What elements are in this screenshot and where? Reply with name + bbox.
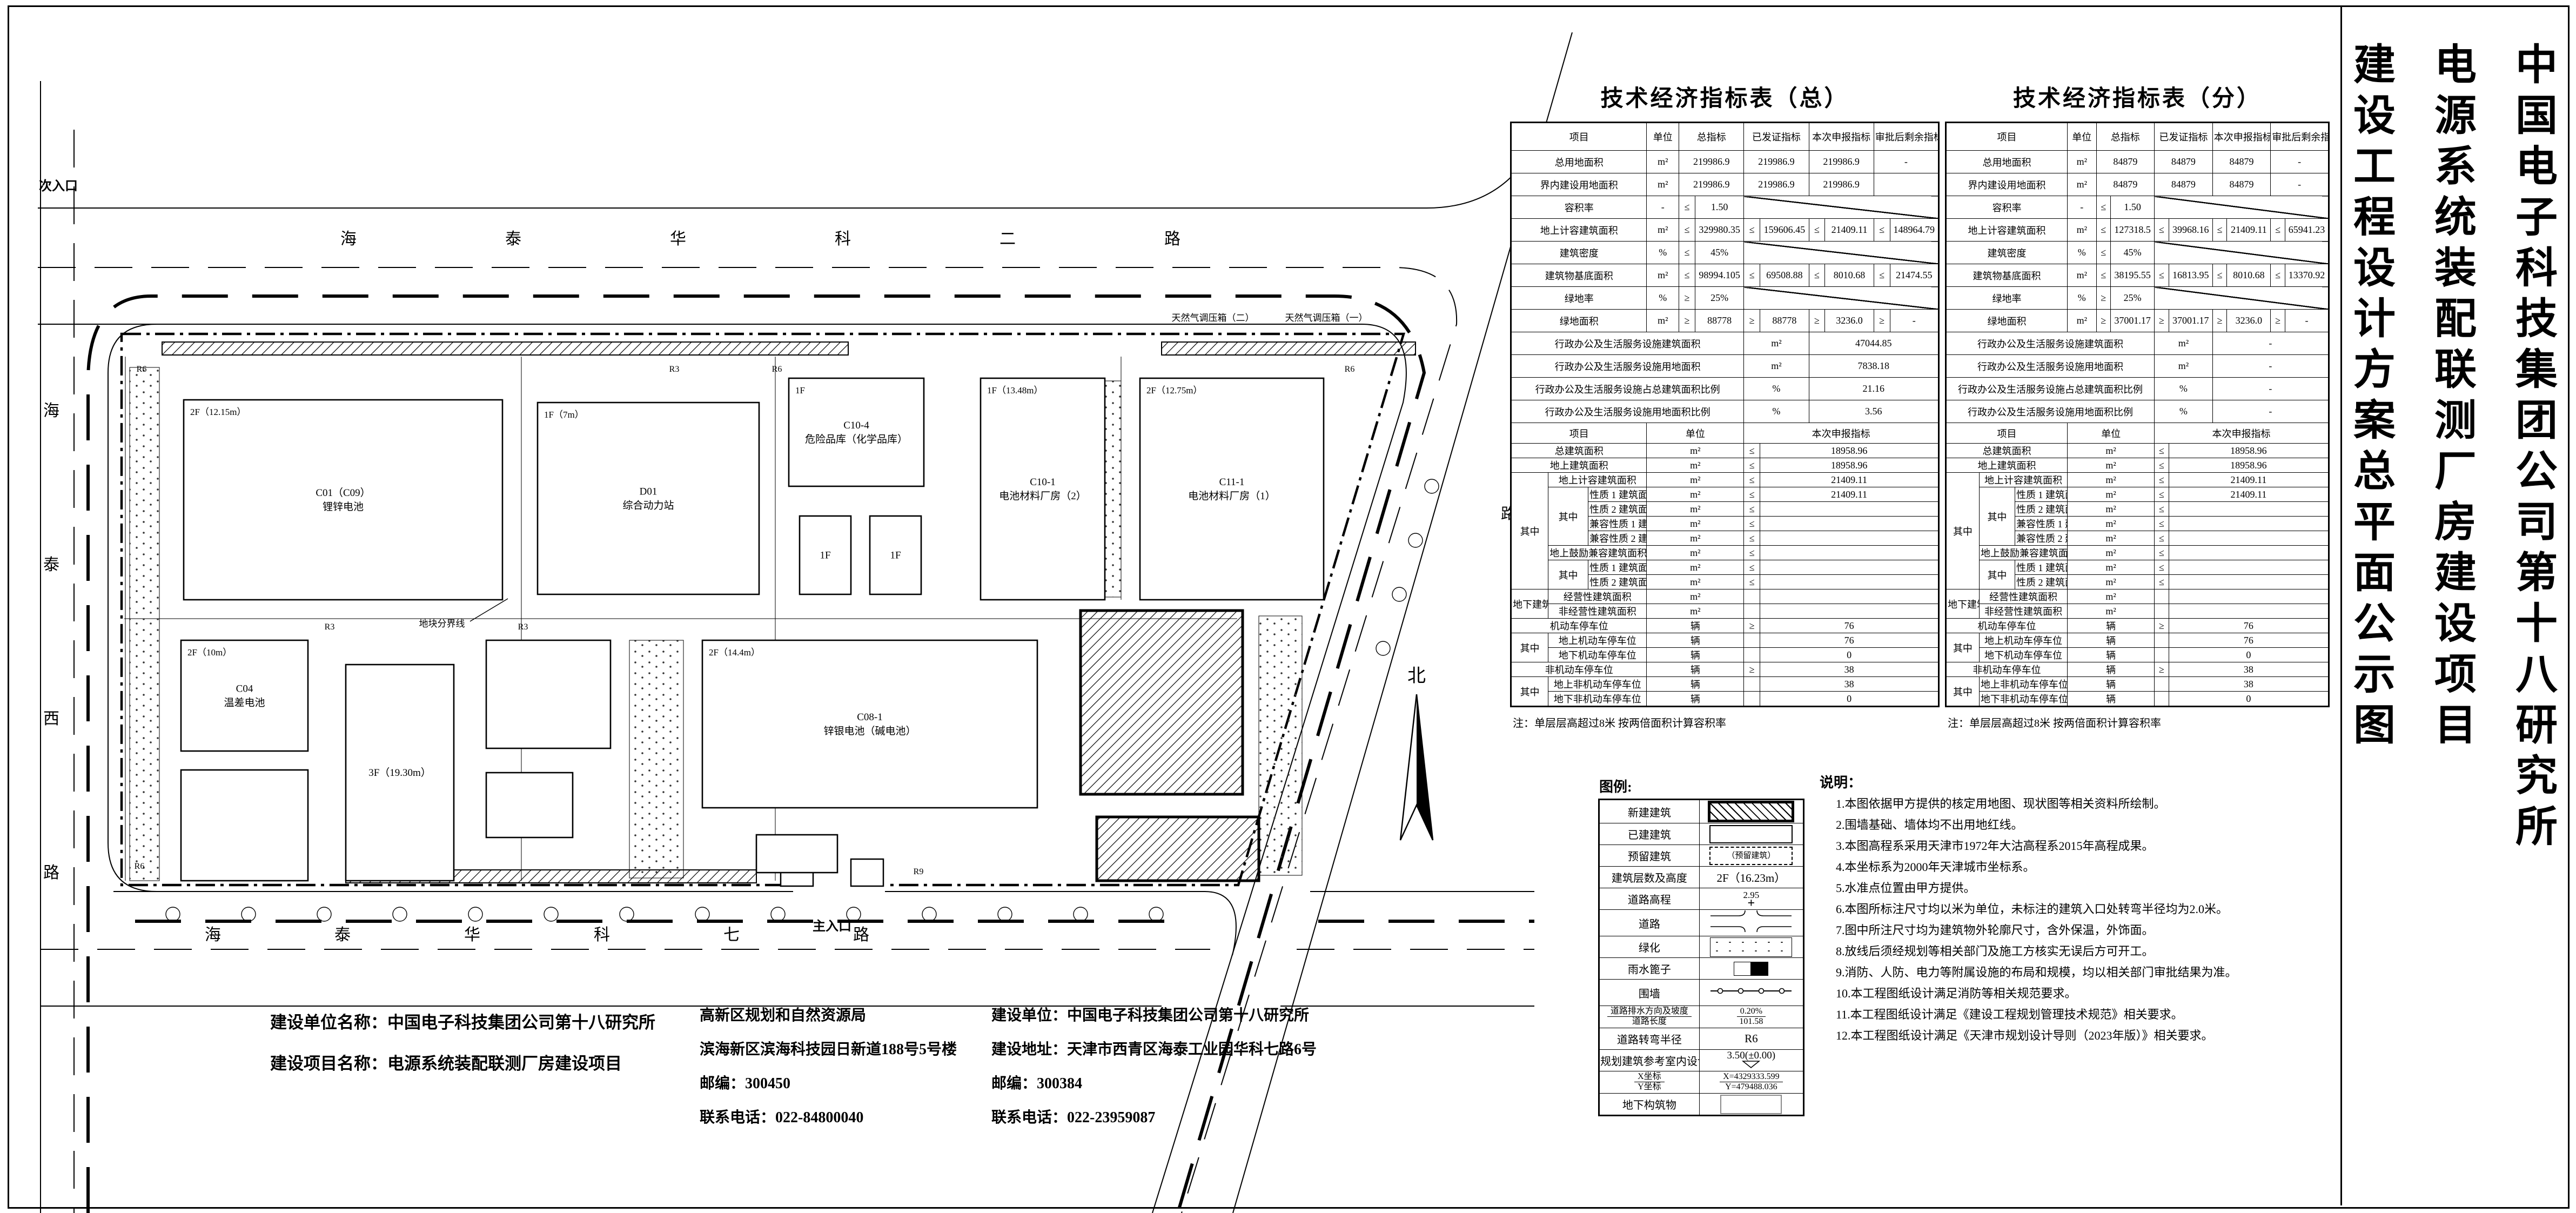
row-label: 地上计容建筑面积	[1979, 473, 2067, 487]
unit-cell: m²	[2068, 444, 2155, 458]
unit-cell: 辆	[2068, 619, 2155, 633]
table-row: 行政办公及生活服务设施占总建筑面积比例%21.16	[1511, 378, 1939, 400]
road-name-top: 海	[340, 230, 357, 248]
reserved-building-swatch: （预留建筑）	[1709, 847, 1793, 865]
table-row: 容积率-≤1.50	[1511, 196, 1939, 219]
unit-cell: 辆	[2068, 692, 2155, 707]
notes-list: 1.本图依据甲方提供的核定用地图、现状图等相关资料所绘制。2.围墙基础、墙体均不…	[1836, 793, 2237, 1046]
row-label: 总建筑面积	[1946, 444, 2068, 458]
sign-cell: ≤	[2155, 473, 2169, 487]
note-item: 4.本坐标系为2000年天津城市坐标系。	[1836, 856, 2237, 877]
sign-cell: ≤	[2155, 487, 2169, 502]
contact-line: 建设地址：天津市西青区海泰工业园华科七路6号	[991, 1033, 1317, 1067]
tree-icon	[242, 907, 256, 921]
table-row: 地上建筑面积m²≤18958.96	[1511, 458, 1939, 473]
unit-cell: m²	[2068, 173, 2096, 196]
table-row: 机动车停车位辆≥76	[1511, 619, 1939, 633]
legend-symbol-frac: 0.20%101.58	[1699, 1006, 1803, 1028]
value-cell	[2169, 531, 2329, 546]
value-cell: 76	[2169, 619, 2329, 633]
legend-row: X坐标Y坐标X=4329333.599Y=479488.036	[1599, 1071, 1804, 1094]
table-row: 机动车停车位辆≥76	[1946, 619, 2329, 633]
row-label: 建筑物基底面积	[1511, 264, 1647, 287]
sign-cell: ≤	[2155, 575, 2169, 589]
group-cell: 其中	[1946, 677, 1980, 707]
value-cell: 25%	[1695, 287, 1743, 310]
road-name-top: 泰	[505, 230, 521, 248]
row-label: 性质 1 建筑面积	[2015, 487, 2068, 502]
sign-cell: ≤	[2155, 458, 2169, 473]
legend: 新建建筑已建建筑预留建筑（预留建筑）建筑层数及高度2F（16.23m）道路高程2…	[1598, 799, 1804, 1116]
table-row: 非经营性建筑面积m²	[1946, 604, 2329, 619]
row-label: 建筑密度	[1946, 242, 2068, 264]
plan-building	[756, 835, 837, 873]
value-cell: 21409.11	[1760, 487, 1939, 502]
table-row: 行政办公及生活服务设施用地面积比例%3.56	[1511, 400, 1939, 423]
building-label: 锌银电池（碱电池）	[823, 725, 916, 737]
legend-symbol-fence	[1699, 980, 1803, 1006]
value-cell: -	[2212, 378, 2329, 400]
value-cell: 1.50	[2111, 196, 2155, 219]
table-total-title: 技术经济指标表（总）	[1510, 80, 1940, 113]
row-label: 性质 1 建筑面积	[1588, 487, 1646, 502]
table-row: 建筑物基底面积m²≤38195.55≤16813.95≤8010.68≤1337…	[1946, 264, 2329, 287]
table-row: 地下机动车停车位辆0	[1511, 648, 1939, 662]
legend-name: 建筑层数及高度	[1599, 867, 1700, 888]
contact-line: 建设单位：中国电子科技集团公司第十八研究所	[991, 998, 1317, 1033]
table-row: 行政办公及生活服务设施用地面积m²-	[1946, 355, 2329, 378]
plan-building	[486, 640, 611, 748]
row-label: 容积率	[1946, 196, 2068, 219]
sign-cell: ≤	[1744, 546, 1760, 560]
value-cell: 0	[2169, 648, 2329, 662]
note-item: 7.图中所注尺寸均为建筑物外轮廓尺寸，含外保温，外饰面。	[1836, 920, 2237, 941]
row-label: 地下非机动车停车位	[1548, 692, 1647, 707]
tree-icon	[771, 907, 785, 921]
group-cell: 其中	[1511, 677, 1548, 707]
building-label: 危险品库（化学品库）	[805, 433, 908, 445]
legend-name: 道路	[1599, 910, 1700, 936]
tree-icon	[544, 907, 558, 921]
sign-cell: ≤	[1744, 219, 1760, 242]
plan-building	[789, 378, 924, 486]
row-label: 性质 2 建筑面积	[1588, 575, 1646, 589]
plan-annotation: 天然气调压箱（二）	[1172, 313, 1255, 323]
sign-cell	[1744, 692, 1760, 707]
unit-cell: -	[1647, 196, 1679, 219]
row-label: 经营性建筑面积	[1548, 589, 1647, 604]
contact-line: 联系电话：022-23959087	[991, 1101, 1317, 1135]
road-edge	[38, 124, 1544, 208]
diagonal-cell	[1744, 196, 1939, 219]
table-row: 其中性质 1 建筑面积m²≤21409.11	[1946, 487, 2329, 502]
value-cell: 18958.96	[1760, 458, 1939, 473]
value-cell	[1760, 531, 1939, 546]
value-cell	[1760, 560, 1939, 575]
tree-icon	[317, 907, 331, 921]
unit-cell: m²	[1647, 604, 1744, 619]
table-row: 非经营性建筑面积m²	[1511, 604, 1939, 619]
group-cell: 其中	[1946, 473, 1980, 589]
row-label: 地上鼓励兼容建筑面积	[1979, 546, 2067, 560]
table-row: 其中性质 1 建筑面积m²≤	[1511, 560, 1939, 575]
unit-cell: 辆	[2068, 677, 2155, 692]
row-label: 兼容性质 2 建筑面积	[2015, 531, 2068, 546]
value-cell: 84879	[2212, 151, 2271, 173]
sign-cell: ≥	[1744, 310, 1760, 332]
plan-building	[181, 770, 308, 881]
diagonal-cell	[1744, 242, 1939, 264]
value-cell: 3.56	[1809, 400, 1938, 423]
table-detail: 项目单位总指标已发证指标本次申报指标审批后剩余指标总用地面积m²84879848…	[1945, 122, 2330, 707]
group-cell: 其中	[1548, 487, 1588, 546]
value-cell: 21.16	[1809, 378, 1938, 400]
table-row: 绿地率%≥25%	[1946, 287, 2329, 310]
unit-cell: %	[1744, 378, 1809, 400]
table-row: 绿地率%≥25%	[1511, 287, 1939, 310]
sign-cell: ≤	[2096, 196, 2111, 219]
legend-row: 绿化	[1599, 936, 1804, 958]
unit-cell: 辆	[1647, 633, 1744, 648]
row-label: 地上非机动车停车位	[1979, 677, 2067, 692]
note-item: 12.本工程图纸设计满足《天津市规划设计导则（2023年版）》相关要求。	[1836, 1025, 2237, 1046]
sign-cell: ≥	[1744, 662, 1760, 677]
legend-row: 预留建筑（预留建筑）	[1599, 845, 1804, 867]
legend-symbol-new	[1699, 800, 1803, 823]
value-cell: 219986.9	[1744, 173, 1809, 196]
column-header: 总指标	[2096, 123, 2155, 151]
value-cell: 76	[1760, 619, 1939, 633]
value-cell	[2169, 589, 2329, 604]
tree-icon	[1408, 533, 1423, 547]
value-cell: -	[2271, 151, 2329, 173]
sign-cell: ≤	[1874, 264, 1890, 287]
value-cell: 8010.68	[1825, 264, 1874, 287]
sign-cell: ≤	[2155, 546, 2169, 560]
road-name-top: 二	[999, 230, 1016, 248]
table-row: 其中地上非机动车停车位辆38	[1946, 677, 2329, 692]
table-row: 绿地面积m²≥88778≥88778≥3236.0≥-	[1511, 310, 1939, 332]
sign-cell: ≤	[1874, 219, 1890, 242]
tree-icon	[1392, 587, 1406, 601]
table-row: 地下建筑面积经营性建筑面积m²	[1946, 589, 2329, 604]
row-label: 性质 2 建筑面积	[2015, 575, 2068, 589]
north-arrow	[1400, 694, 1433, 840]
unit-cell: 辆	[2068, 662, 2155, 677]
contact-line: 滨海新区滨海科技园日新道188号5号楼	[700, 1033, 957, 1067]
row-label: 地上非机动车停车位	[1548, 677, 1647, 692]
unit-cell: m²	[2068, 264, 2096, 287]
value-cell: 47044.85	[1809, 332, 1938, 355]
legend-row: 新建建筑	[1599, 800, 1804, 823]
unit-cell: %	[2068, 242, 2096, 264]
table-total-note: 注：单层层高超过8米 按两倍面积计算容积率	[1513, 714, 1726, 730]
table-row: 地下非机动车停车位辆0	[1946, 692, 2329, 707]
legend-name: 道路排水方向及坡度道路长度	[1599, 1006, 1700, 1028]
row-label: 行政办公及生活服务设施用地面积比例	[1511, 400, 1744, 423]
sign-cell	[2155, 604, 2169, 619]
legend-row: 围墙	[1599, 980, 1804, 1006]
row-label: 地下机动车停车位	[1979, 648, 2067, 662]
row-label: 性质 1 建筑面积	[1588, 560, 1646, 575]
value-cell	[2169, 502, 2329, 517]
value-cell	[1874, 173, 1938, 196]
unit-cell: m²	[1744, 332, 1809, 355]
building-floors-label: 2F（14.4m）	[709, 647, 760, 658]
diagonal-cell	[1744, 287, 1939, 310]
radius-label: R6	[137, 365, 147, 374]
unit-cell: %	[1744, 400, 1809, 423]
legend-symbol-reserved: （预留建筑）	[1699, 845, 1803, 867]
row-label: 经营性建筑面积	[1979, 589, 2067, 604]
note-item: 2.围墙基础、墙体均不出用地红线。	[1836, 814, 2237, 835]
building-label: C01（C09）	[316, 487, 370, 499]
unit-cell: m²	[2068, 473, 2155, 487]
sign-cell: ≥	[1809, 310, 1825, 332]
value-cell: 18958.96	[1760, 444, 1939, 458]
building-label: D01	[640, 486, 658, 498]
tec-table: 项目单位总指标已发证指标本次申报指标审批后剩余指标总用地面积m²84879848…	[1945, 122, 2330, 707]
contact-block-authority: 高新区规划和自然资源局滨海新区滨海科技园日新道188号5号楼邮编：300450联…	[700, 998, 957, 1135]
table-row: 其中地上计容建筑面积m²≤21409.11	[1511, 473, 1939, 487]
row-label: 界内建设用地面积	[1511, 173, 1647, 196]
table-row: 建筑密度%≤45%	[1946, 242, 2329, 264]
row-label: 行政办公及生活服务设施占总建筑面积比例	[1946, 378, 2155, 400]
sign-cell: ≤	[2155, 502, 2169, 517]
legend-table: 新建建筑已建建筑预留建筑（预留建筑）建筑层数及高度2F（16.23m）道路高程2…	[1598, 799, 1804, 1116]
row-label: 非经营性建筑面积	[1979, 604, 2067, 619]
unit-cell: m²	[2068, 517, 2155, 531]
title-line-2: 电源系统装配联测厂房建设项目	[2421, 42, 2482, 961]
sign-cell: ≤	[1744, 473, 1760, 487]
sign-cell: ≤	[1679, 242, 1695, 264]
sign-cell: ≥	[1744, 619, 1760, 633]
unit-cell: m²	[2068, 487, 2155, 502]
sign-cell: ≤	[2096, 242, 2111, 264]
sign-cell	[1744, 604, 1760, 619]
road-name-left: 海	[43, 402, 59, 420]
unit-cell: %	[2155, 400, 2213, 423]
unit-cell: m²	[2068, 531, 2155, 546]
unit-cell: m²	[1647, 589, 1744, 604]
sign-cell: ≤	[2155, 444, 2169, 458]
table-detail-title: 技术经济指标表（分）	[1945, 80, 2330, 113]
legend-symbol-datum: 3.50(±0.00)	[1699, 1050, 1803, 1071]
value-cell: 84879	[2155, 151, 2213, 173]
row-label: 绿地率	[1946, 287, 2068, 310]
value-cell: 159606.45	[1760, 219, 1809, 242]
table-row: 非机动车停车位辆≥38	[1511, 662, 1939, 677]
row-label: 兼容性质 1 建筑面积	[1588, 517, 1646, 531]
diagonal-cell	[2155, 242, 2329, 264]
sign-cell: ≤	[2155, 264, 2169, 287]
row-label: 地上机动车停车位	[1979, 633, 2067, 648]
legend-name: 雨水篦子	[1599, 958, 1700, 980]
new-building	[1097, 817, 1259, 881]
value-cell	[1760, 589, 1939, 604]
column-header: 已发证指标	[1744, 123, 1809, 151]
sign-cell	[2155, 648, 2169, 662]
unit-cell: m²	[2068, 310, 2096, 332]
row-label: 绿地面积	[1511, 310, 1647, 332]
unit-cell: %	[1647, 287, 1679, 310]
value-cell: 219986.9	[1809, 151, 1874, 173]
sign-cell: ≥	[2096, 287, 2111, 310]
table-row: 行政办公及生活服务设施建筑面积m²-	[1946, 332, 2329, 355]
unit-cell: m²	[2068, 458, 2155, 473]
building-label: C04	[236, 683, 253, 695]
group-cell: 其中	[1548, 560, 1588, 589]
row-label: 地上机动车停车位	[1548, 633, 1647, 648]
building-label: 电池材料厂房（2）	[999, 490, 1086, 502]
note-item: 11.本工程图纸设计满足《建设工程规划管理技术规范》相关要求。	[1836, 1004, 2237, 1025]
unit-cell: 辆	[1647, 677, 1744, 692]
value-cell: 88778	[1760, 310, 1809, 332]
table-row: 地上建筑面积m²≤18958.96	[1946, 458, 2329, 473]
unit-cell: 辆	[1647, 619, 1744, 633]
row-label: 性质 2 建筑面积	[2015, 502, 2068, 517]
table-section2-header: 项目单位本次申报指标	[1946, 423, 2329, 444]
table-row: 建筑物基底面积m²≤98994.105≤69508.88≤8010.68≤214…	[1511, 264, 1939, 287]
table-row: 地上计容建筑面积m²≤127318.5≤39968.16≤21409.11≤65…	[1946, 219, 2329, 242]
value-cell	[2169, 575, 2329, 589]
unit-cell: m²	[1647, 219, 1679, 242]
building-floors-label: 1F（7m）	[544, 410, 584, 420]
sign-cell: ≤	[1744, 517, 1760, 531]
row-label: 性质 1 建筑面积	[2015, 560, 2068, 575]
plan-building	[981, 378, 1105, 600]
unit-cell: m²	[2155, 332, 2213, 355]
sign-cell: ≥	[1874, 310, 1890, 332]
new-building-swatch	[1708, 801, 1794, 822]
row-label: 行政办公及生活服务设施建筑面积	[1511, 332, 1744, 355]
note-item: 5.水准点位置由甲方提供。	[1836, 877, 2237, 899]
notes-title: 说明：	[1820, 772, 1862, 792]
sign-cell	[2155, 692, 2169, 707]
note-item: 1.本图依据甲方提供的核定用地图、现状图等相关资料所绘制。	[1836, 793, 2237, 814]
sign-cell	[1744, 589, 1760, 604]
table-row: 地上计容建筑面积m²≤329980.35≤159606.45≤21409.11≤…	[1511, 219, 1939, 242]
unit-cell: m²	[2068, 219, 2096, 242]
legend-title: 图例:	[1599, 776, 1632, 796]
value-cell	[1760, 546, 1939, 560]
value-cell: -	[2212, 332, 2329, 355]
legend-name: 道路高程	[1599, 888, 1700, 910]
new-construction-strip	[162, 342, 848, 355]
value-cell: -	[2285, 310, 2329, 332]
sign-cell	[2155, 677, 2169, 692]
unit-cell: m²	[1647, 458, 1744, 473]
value-cell: 18958.96	[2169, 458, 2329, 473]
road-name-left: 泰	[43, 556, 59, 574]
legend-symbol-text: R6	[1699, 1028, 1803, 1050]
underground-swatch	[1720, 1095, 1782, 1114]
title-line-1: 中国电子科技集团公司第十八研究所	[2503, 42, 2563, 961]
sign-cell: ≤	[2271, 264, 2285, 287]
plan-annotation: 北	[1407, 666, 1426, 686]
sign-cell: ≤	[2155, 517, 2169, 531]
group-cell: 其中	[1946, 633, 1980, 662]
unit-cell: 辆	[1647, 662, 1744, 677]
column-header: 审批后剩余指标	[1874, 123, 1938, 151]
greening-swatch	[1710, 937, 1792, 957]
column-header: 本次申报指标	[2212, 123, 2271, 151]
unit-cell: m²	[1647, 546, 1744, 560]
sign-cell: ≤	[1744, 560, 1760, 575]
value-cell: 84879	[2096, 151, 2155, 173]
unit-cell: m²	[1647, 264, 1679, 287]
column-header: 已发证指标	[2155, 123, 2213, 151]
unit-cell: m²	[1647, 575, 1744, 589]
value-cell: -	[2212, 355, 2329, 378]
sign-cell: ≤	[1809, 219, 1825, 242]
radius-label: R6	[135, 862, 145, 871]
unit-cell: m²	[1647, 517, 1744, 531]
table-row: 行政办公及生活服务设施用地面积比例%-	[1946, 400, 2329, 423]
tree-icon	[1074, 907, 1088, 921]
tree-icon	[998, 907, 1012, 921]
green-area	[1259, 616, 1302, 875]
building-label: 1F	[890, 550, 901, 561]
unit-cell: m²	[2068, 151, 2096, 173]
building-floors-label: 2F（12.75m）	[1146, 385, 1202, 396]
value-cell: 21409.11	[1760, 473, 1939, 487]
tree-icon	[166, 907, 180, 921]
group-cell: 其中	[1979, 560, 2015, 589]
value-cell: 13370.92	[2285, 264, 2329, 287]
contact-line: 建设项目名称：电源系统装配联测厂房建设项目	[270, 1043, 655, 1084]
legend-name: 地下构筑物	[1599, 1094, 1700, 1116]
value-cell: 98994.105	[1695, 264, 1743, 287]
sign-cell: ≤	[1809, 264, 1825, 287]
row-label: 非机动车停车位	[1946, 662, 2068, 677]
value-cell	[2169, 517, 2329, 531]
sign-cell: ≤	[2212, 264, 2227, 287]
value-cell	[2169, 560, 2329, 575]
value-cell: 0	[1760, 648, 1939, 662]
building-floors-label: 2F（12.15m）	[190, 407, 246, 417]
value-cell: 21409.11	[1825, 219, 1874, 242]
column-header: 单位	[2068, 423, 2155, 444]
value-cell: -	[2271, 173, 2329, 196]
value-cell: 69508.88	[1760, 264, 1809, 287]
legend-symbol-green	[1699, 936, 1803, 958]
unit-cell: m²	[1647, 310, 1679, 332]
building-label: 温差电池	[224, 697, 265, 709]
value-cell: 65941.23	[2285, 219, 2329, 242]
diagonal-cell	[2155, 196, 2329, 219]
table-row: 建筑密度%≤45%	[1511, 242, 1939, 264]
building-floors-label: 2F（10m）	[187, 647, 232, 658]
unit-cell: 辆	[1647, 692, 1744, 707]
building-label: C10-4	[843, 420, 869, 431]
row-label: 总用地面积	[1946, 151, 2068, 173]
legend-name: 预留建筑	[1599, 845, 1700, 867]
value-cell: 84879	[2096, 173, 2155, 196]
legend-name: 道路转弯半径	[1599, 1028, 1700, 1050]
sign-cell: ≤	[1744, 458, 1760, 473]
unit-cell: m²	[2068, 546, 2155, 560]
column-header: 单位	[2068, 123, 2096, 151]
plan-building	[538, 403, 759, 594]
value-cell: 76	[1760, 633, 1939, 648]
sign-cell: ≤	[2155, 531, 2169, 546]
row-label: 地上鼓励兼容建筑面积	[1548, 546, 1647, 560]
value-cell: 0	[1760, 692, 1939, 707]
legend-row: 道路排水方向及坡度道路长度0.20%101.58	[1599, 1006, 1804, 1028]
legend-name: 绿化	[1599, 936, 1700, 958]
value-cell: 45%	[1695, 242, 1743, 264]
